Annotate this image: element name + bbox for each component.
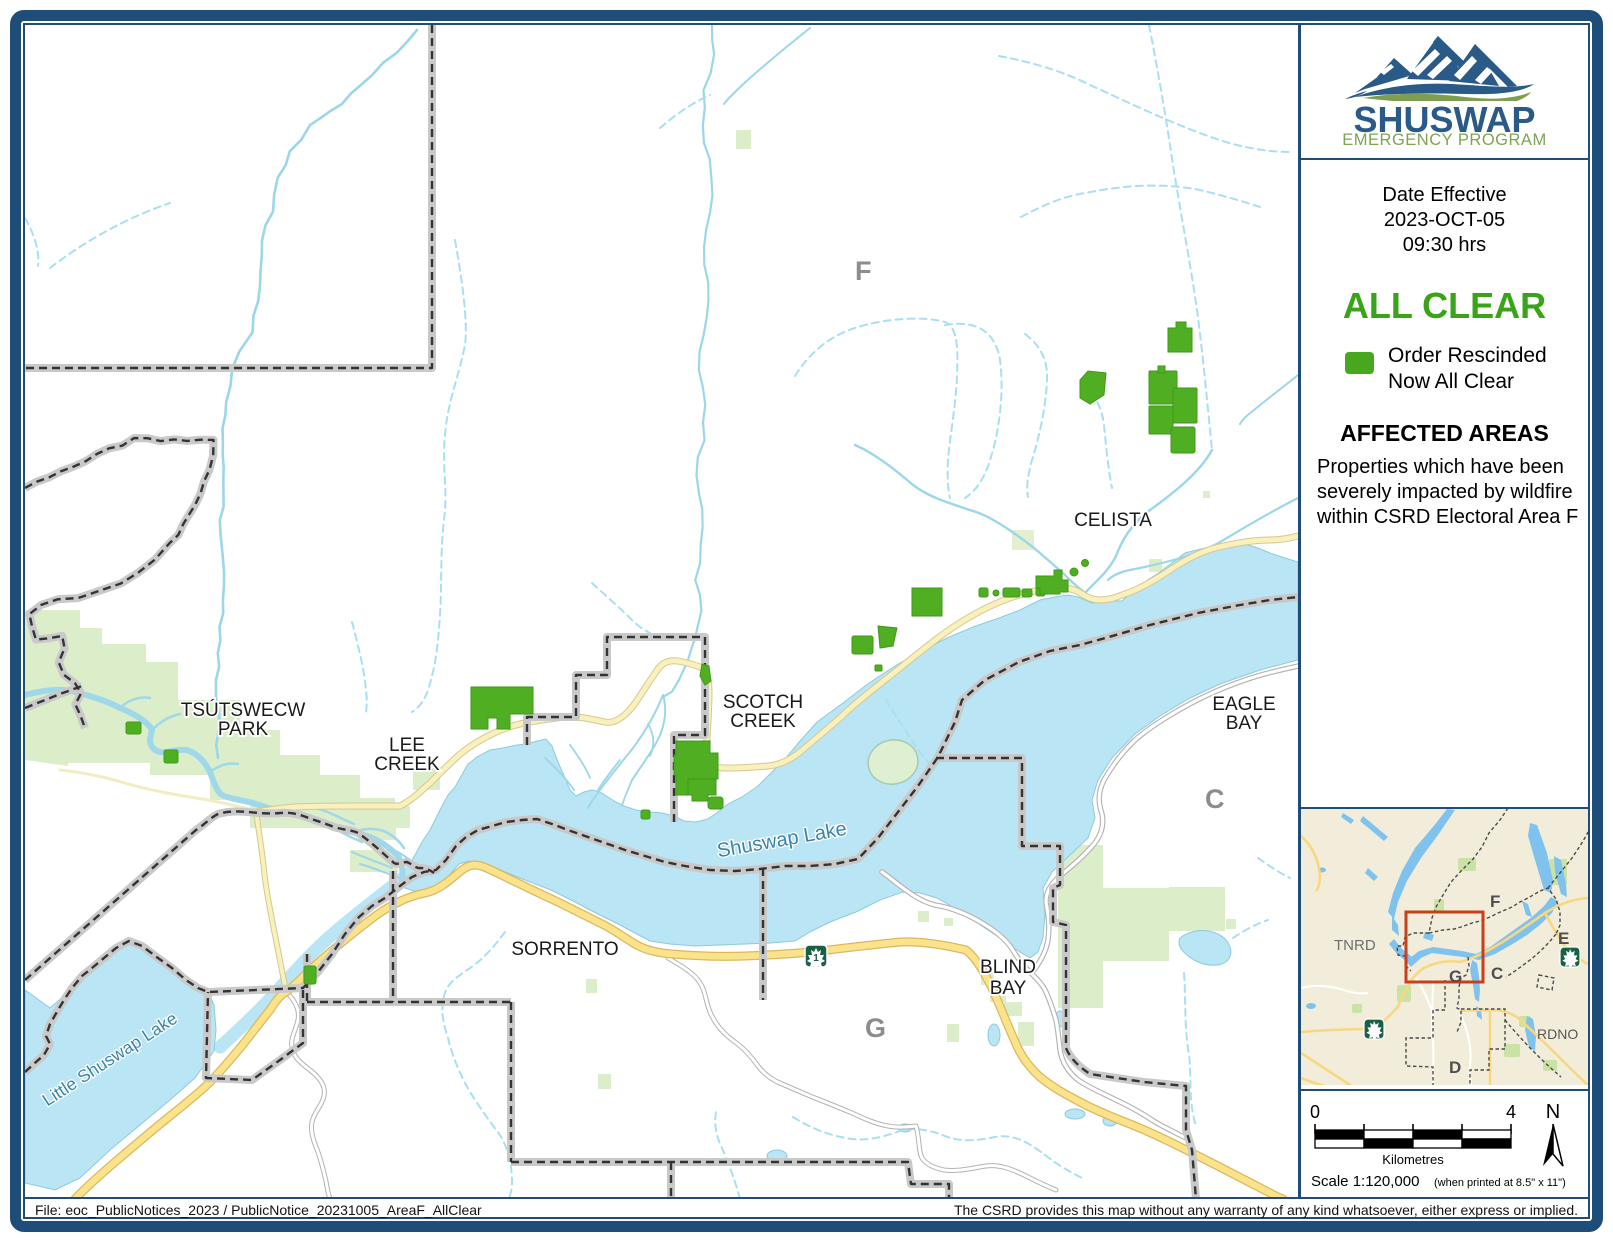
svg-text:CREEK: CREEK xyxy=(730,711,796,732)
svg-text:E: E xyxy=(1558,929,1569,948)
svg-text:BAY: BAY xyxy=(1226,713,1263,734)
svg-text:F: F xyxy=(855,256,872,286)
svg-text:CREEK: CREEK xyxy=(374,754,440,775)
svg-text:RDNO: RDNO xyxy=(1537,1026,1578,1042)
svg-text:D: D xyxy=(1449,1058,1461,1077)
svg-text:SCOTCH: SCOTCH xyxy=(723,692,803,713)
svg-text:EAGLE: EAGLE xyxy=(1212,694,1275,715)
svg-text:1: 1 xyxy=(813,953,819,964)
svg-text:TNRD: TNRD xyxy=(1334,937,1376,954)
svg-text:(when printed at 8.5" x 11"): (when printed at 8.5" x 11") xyxy=(1434,1177,1566,1189)
svg-text:G: G xyxy=(865,1013,886,1043)
svg-text:LEE: LEE xyxy=(389,735,425,756)
svg-text:Scale 1:120,000: Scale 1:120,000 xyxy=(1311,1173,1419,1190)
svg-text:CELISTA: CELISTA xyxy=(1074,510,1152,531)
svg-text:0: 0 xyxy=(1310,1102,1320,1122)
svg-text:BAY: BAY xyxy=(990,978,1027,999)
svg-text:G: G xyxy=(1449,967,1462,986)
svg-text:BLIND: BLIND xyxy=(980,957,1036,978)
svg-text:4: 4 xyxy=(1506,1102,1516,1122)
svg-text:C: C xyxy=(1205,784,1225,814)
svg-text:N: N xyxy=(1546,1101,1560,1123)
svg-text:SORRENTO: SORRENTO xyxy=(511,939,618,960)
svg-text:C: C xyxy=(1491,964,1503,983)
svg-text:PARK: PARK xyxy=(218,719,269,740)
svg-text:TSÚTSWECW: TSÚTSWECW xyxy=(181,699,306,721)
svg-text:Kilometres: Kilometres xyxy=(1382,1152,1444,1167)
svg-text:F: F xyxy=(1490,892,1500,911)
